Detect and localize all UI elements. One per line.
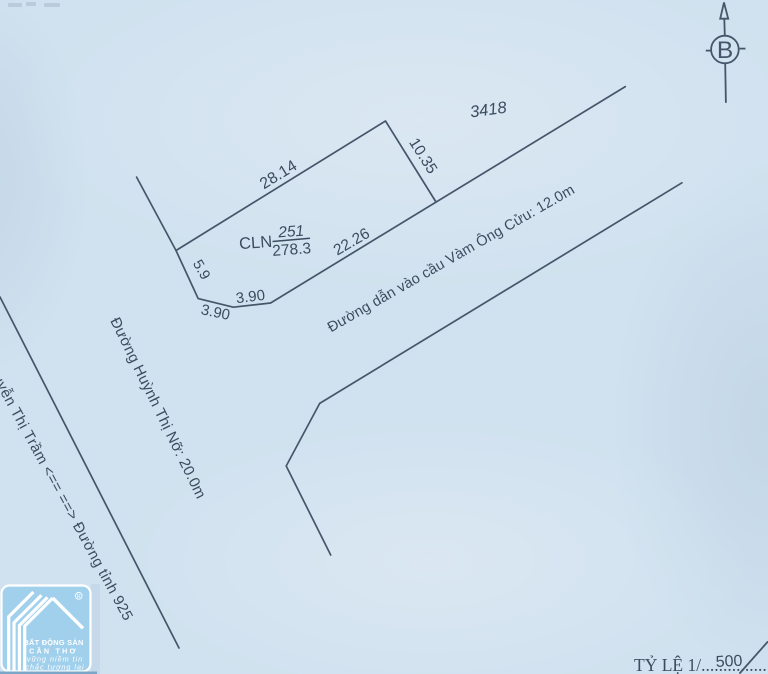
svg-text:BẤT ĐỘNG SẢN: BẤT ĐỘNG SẢN [23,637,83,647]
svg-text:B: B [717,37,733,64]
svg-text:278.3: 278.3 [272,240,312,260]
svg-text:R: R [77,594,81,600]
svg-text:500: 500 [715,653,743,671]
svg-text:CLN: CLN [239,233,273,253]
svg-text:chắc tương lai: chắc tương lai [25,663,84,672]
svg-text:3.90: 3.90 [235,287,266,307]
